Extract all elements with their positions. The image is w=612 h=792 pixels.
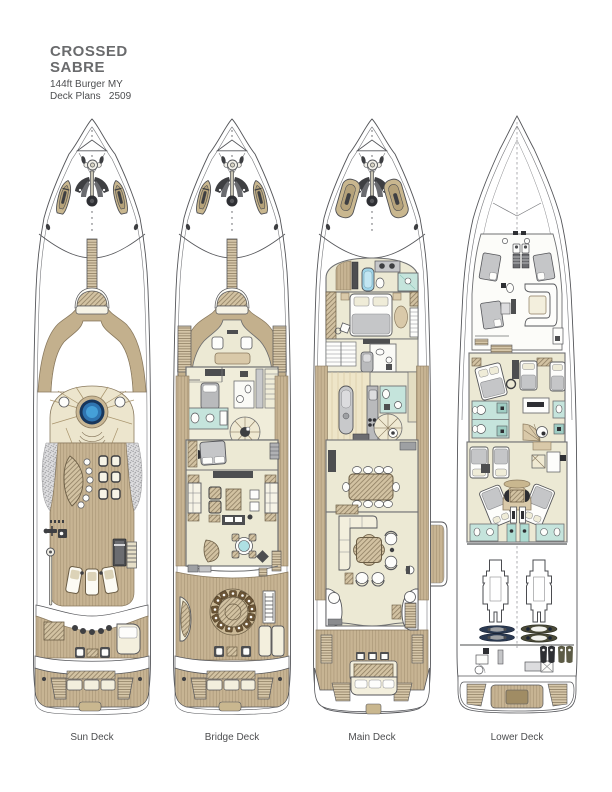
svg-text:Lower Deck: Lower Deck — [491, 732, 545, 743]
svg-text:Bridge Deck: Bridge Deck — [205, 732, 260, 743]
svg-text:Sun Deck: Sun Deck — [70, 732, 114, 743]
svg-text:Main Deck: Main Deck — [348, 732, 396, 743]
